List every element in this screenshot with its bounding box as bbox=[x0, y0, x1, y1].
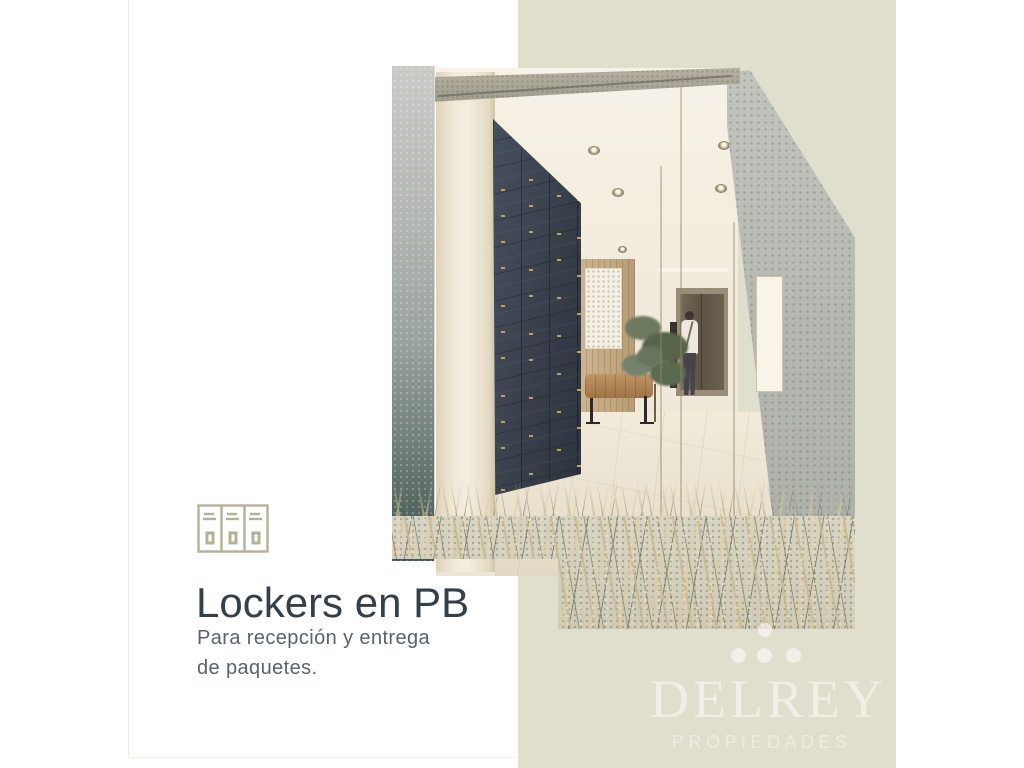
lobby-render bbox=[392, 62, 855, 629]
brand-dot-icon bbox=[786, 648, 801, 663]
bench-foot bbox=[640, 422, 654, 424]
cove-light bbox=[658, 268, 728, 272]
ceiling-light-icon bbox=[718, 141, 730, 150]
lockers-icon bbox=[197, 504, 269, 553]
person-figure bbox=[685, 311, 694, 320]
ceiling-light-icon bbox=[618, 246, 627, 253]
caption-body-line1: Para recepción y entrega bbox=[197, 627, 430, 649]
backlit-sign-panel bbox=[756, 276, 783, 392]
caption-body-line2: de paquetes. bbox=[197, 657, 317, 679]
brand-tagline-watermark: PROPIEDADES bbox=[672, 733, 902, 751]
marketing-card: { "page": { "background": "#ffffff" }, "… bbox=[0, 0, 1024, 768]
caption-body: Para recepción y entrega de paquetes. bbox=[197, 623, 430, 683]
ceiling-light-icon bbox=[612, 188, 624, 197]
brand-dot-icon bbox=[757, 648, 772, 663]
leather-bench bbox=[585, 374, 653, 398]
botanical-artwork bbox=[585, 268, 622, 349]
bench-foot bbox=[586, 422, 600, 424]
brand-dot-icon bbox=[731, 648, 746, 663]
elevator-door-seam bbox=[701, 294, 702, 390]
brand-name-watermark: DELREY bbox=[650, 672, 910, 726]
bench-leg bbox=[590, 398, 593, 424]
ceiling-light-icon bbox=[715, 184, 727, 193]
locker-number-plates bbox=[501, 189, 505, 191]
backdrop-card-edge bbox=[128, 0, 129, 757]
ornamental-grass bbox=[392, 480, 855, 520]
caption-heading: Lockers en PB bbox=[196, 580, 469, 626]
brand-dot-icon bbox=[758, 623, 772, 637]
tree-trunk bbox=[654, 384, 656, 422]
backdrop-card-bottom-edge bbox=[128, 757, 520, 758]
bench-leg bbox=[644, 396, 647, 424]
ceiling-light-icon bbox=[588, 146, 600, 155]
